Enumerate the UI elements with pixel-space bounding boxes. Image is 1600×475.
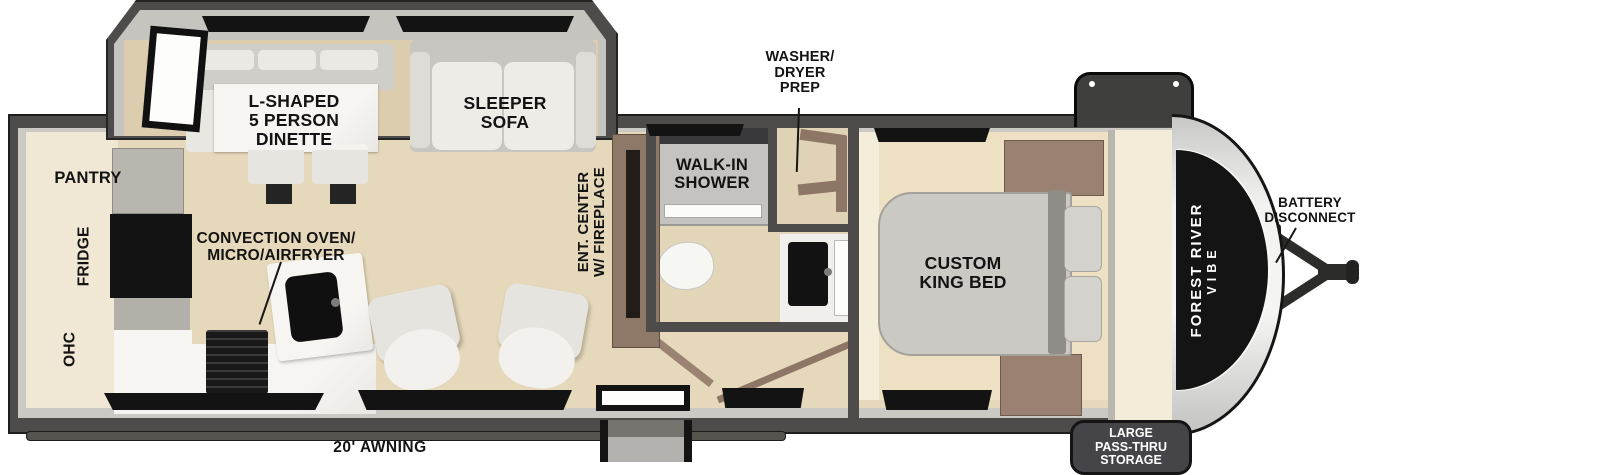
closet-shelf — [836, 136, 847, 212]
label-ohc: OHC — [63, 319, 80, 379]
nightstand-top — [1004, 140, 1104, 196]
window-bedroom-bottom — [882, 390, 992, 410]
closet-wall-horizontal — [768, 224, 858, 232]
bathroom-wall-left — [646, 120, 656, 332]
label-awning: 20' AWNING — [318, 440, 442, 457]
kitchen-faucet — [331, 298, 340, 307]
window-living-bottom — [358, 390, 572, 410]
slide-window-sofa — [396, 16, 574, 32]
propane-cover-bolt — [1173, 81, 1179, 87]
shower-glass — [664, 204, 762, 218]
slide-window-dinette — [202, 16, 370, 32]
label-sleeper-sofa: SLEEPER SOFA — [425, 94, 585, 132]
window-shower-top — [646, 124, 744, 136]
label-walk-in-shower: WALK-IN SHOWER — [650, 157, 774, 193]
label-king-bed: CUSTOM KING BED — [885, 254, 1041, 292]
window-hall-bottom — [722, 388, 804, 408]
pass-thru-storage-label: LARGE PASS-THRU STORAGE — [1095, 427, 1167, 468]
window-bedroom-top — [874, 128, 990, 142]
label-washer-dryer: WASHER/ DRYER PREP — [754, 50, 846, 97]
window-kitchen-bottom — [104, 393, 324, 410]
dinette-stool — [248, 144, 304, 184]
dinette-cushion — [258, 50, 316, 70]
brand-model: VIBE — [1205, 175, 1219, 365]
entry-steps — [600, 420, 692, 462]
bedroom-floor-band — [859, 132, 879, 400]
brand-logo: FOREST RIVER VIBE — [1188, 175, 1232, 365]
rv-floorplan: FOREST RIVER VIBE LARGE PASS-THRU STORAG… — [0, 0, 1600, 475]
vanity-faucet — [824, 268, 832, 276]
brand-name: FOREST RIVER — [1188, 175, 1205, 365]
label-convection: CONVECTION OVEN/ MICRO/AIRFRYER — [162, 231, 390, 264]
bedroom-wall — [848, 116, 859, 430]
label-pantry: PANTRY — [48, 170, 128, 188]
wardrobe — [1108, 130, 1179, 420]
tv — [626, 150, 640, 318]
pass-thru-storage-badge: LARGE PASS-THRU STORAGE — [1070, 420, 1192, 475]
pillow — [1064, 206, 1102, 272]
label-fridge: FRIDGE — [77, 211, 94, 301]
label-ent-center: ENT. CENTER W/ FIREPLACE — [576, 137, 612, 307]
nightstand-bottom — [1000, 354, 1082, 416]
pillow — [1064, 276, 1102, 342]
entry-door — [596, 385, 690, 411]
propane-cover-bolt — [1089, 81, 1095, 87]
label-dinette: L-SHAPED 5 PERSON DINETTE — [214, 92, 374, 149]
dinette-stool — [312, 144, 368, 184]
cooktop — [206, 330, 268, 394]
kitchen-sink — [284, 271, 344, 343]
kitchen-lower-cabinet — [114, 298, 190, 334]
dinette-cushion — [320, 50, 378, 70]
label-battery: BATTERY DISCONNECT — [1248, 196, 1372, 225]
bathroom-wall-bottom — [646, 322, 858, 332]
vanity-sink — [788, 242, 828, 306]
slide-side-window — [142, 26, 209, 133]
